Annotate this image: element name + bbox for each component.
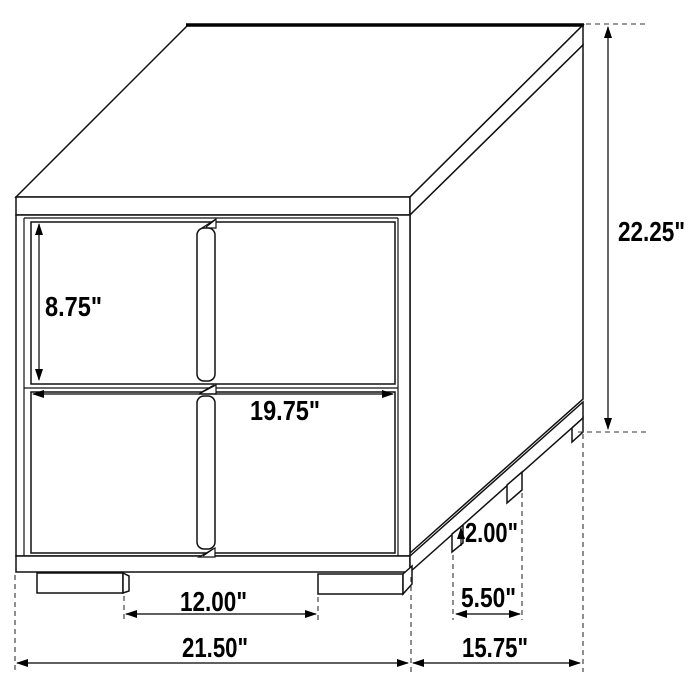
label-overall-depth: 15.75" xyxy=(462,632,528,663)
nightstand-line-drawing: 8.75" 22.25" 19.75" 2.00" 5.50" 12.00" 2… xyxy=(0,0,700,700)
label-drawer-width: 19.75" xyxy=(250,395,320,426)
top-drawer-handle xyxy=(197,228,215,381)
label-front-leg-spacing: 12.00" xyxy=(180,586,247,617)
bottom-drawer-handle xyxy=(197,396,215,549)
furniture-dimension-diagram: 8.75" 22.25" 19.75" 2.00" 5.50" 12.00" 2… xyxy=(0,0,700,700)
label-leg-height: 2.00" xyxy=(465,517,518,548)
label-drawer-height: 8.75" xyxy=(45,291,102,322)
front-left-leg xyxy=(37,573,123,593)
front-left-leg-side xyxy=(123,573,129,593)
label-overall-height: 22.25" xyxy=(618,216,685,247)
label-overall-width: 21.50" xyxy=(182,632,248,663)
top-slab-front xyxy=(16,197,410,215)
base-rail-front xyxy=(16,556,410,572)
front-right-leg xyxy=(318,574,403,594)
label-side-leg-spacing: 5.50" xyxy=(461,582,516,613)
